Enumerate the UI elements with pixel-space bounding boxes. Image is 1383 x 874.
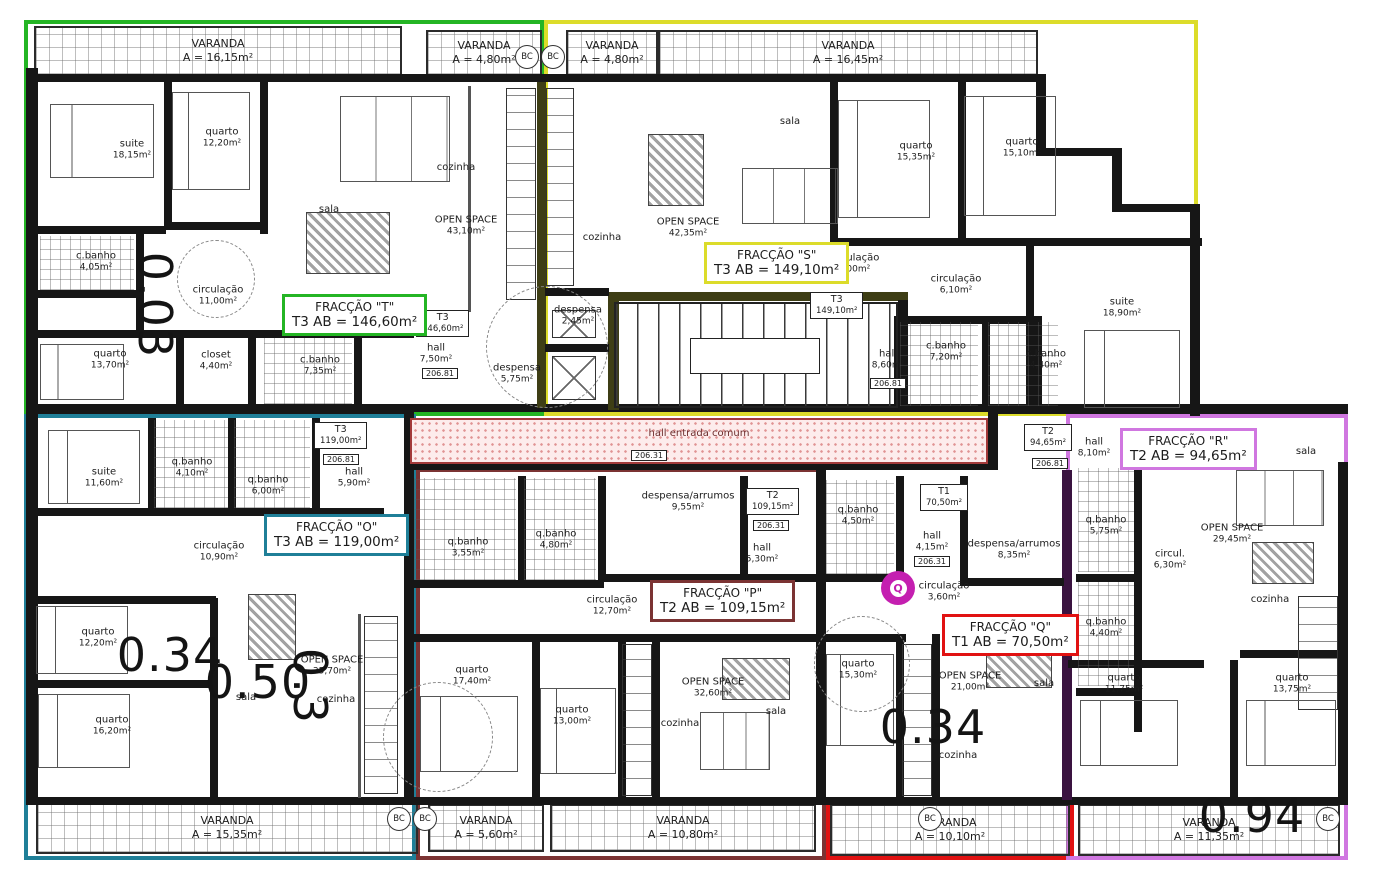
room-name: hall: [872, 349, 904, 361]
fraccao-box-Q: FRACÇÃO "Q" T1 AB = 70,50m²: [942, 614, 1079, 656]
room-area: 11,60m²: [85, 479, 123, 490]
wall: [412, 580, 604, 588]
varanda-area: A = 4,80m²: [580, 53, 643, 67]
room-label-s-quarto2: quarto15,10m²: [1003, 137, 1041, 160]
room-name: cozinha: [437, 162, 475, 174]
room-area: 5,90m²: [338, 479, 370, 490]
room-area: 6,30m²: [1154, 561, 1186, 572]
wall: [168, 222, 268, 230]
room-area: 6,00m²: [248, 487, 289, 498]
room-name: c.banho: [300, 355, 340, 367]
room-label-q-circ: circulação3,60m²: [919, 581, 970, 604]
room-name: suite: [1103, 297, 1141, 309]
room-area: 18,15m²: [113, 151, 151, 162]
room-label-s-circ2: circulação6,10m²: [931, 274, 982, 297]
room-label-t-cbanho2: c.banho7,35m²: [300, 355, 340, 378]
room-label-t-quarto1: quarto12,20m²: [203, 127, 241, 150]
wall: [26, 74, 1040, 82]
varanda-area: A = 16,45m²: [813, 53, 883, 67]
varanda-bottom-mid-right: VARANDAA = 10,10m²: [830, 804, 1070, 856]
room-name: despensa: [493, 363, 541, 375]
room-name: quarto: [203, 127, 241, 139]
wall: [1230, 660, 1238, 798]
room-name: q.banho: [1086, 617, 1127, 629]
room-label-p-sala: sala: [766, 706, 786, 718]
fraccao-detail: T2 AB = 94,65m²: [1130, 448, 1247, 464]
room-name: quarto: [93, 715, 131, 727]
room-label-o-suite: suite11,60m²: [85, 467, 123, 490]
room-name: q.banho: [248, 475, 289, 487]
room-label-r-circ: circul.6,30m²: [1154, 549, 1186, 572]
sofa: [742, 168, 838, 224]
room-area: 5,75m²: [1086, 527, 1127, 538]
room-name: suite: [85, 467, 123, 479]
fraccao-detail: T3 AB = 149,10m²: [714, 262, 839, 278]
room-name: q.banho: [1086, 515, 1127, 527]
wall: [164, 82, 172, 230]
varanda-label: VARANDA: [648, 814, 718, 828]
room-label-p-qbanho1: q.banho3,55m²: [448, 537, 489, 560]
room-name: sala: [780, 116, 800, 128]
room-name: despensa: [554, 305, 602, 317]
room-area: 13,70m²: [91, 361, 129, 372]
wall: [26, 797, 1346, 805]
room-area: 15,10m²: [1003, 149, 1041, 160]
room-name: q.banho: [536, 529, 577, 541]
room-label-s-quarto1: quarto15,35m²: [897, 141, 935, 164]
level-tag-S: 206.81: [870, 378, 906, 389]
wall: [532, 642, 540, 798]
room-label-p-circ: circulação12,70m²: [587, 595, 638, 618]
dining-table: [1252, 542, 1314, 584]
room-name: c.banho: [76, 251, 116, 263]
fraccao-title: FRACÇÃO "S": [714, 248, 839, 262]
wall: [1338, 462, 1348, 805]
room-label-r-hall: hall8,10m²: [1078, 437, 1110, 460]
room-label-p-despensa: despensa/arrumos9,55m²: [642, 491, 735, 514]
room-area: 18,90m²: [1103, 309, 1141, 320]
varanda-area: A = 5,60m²: [454, 828, 517, 842]
room-name: sala: [319, 204, 339, 216]
fraccao-detail: T1 AB = 70,50m²: [952, 634, 1069, 650]
wall: [1190, 204, 1200, 416]
room-area: 4,50m²: [838, 517, 879, 528]
varanda-label: VARANDA: [580, 39, 643, 53]
fraccao-title: FRACÇÃO "P": [660, 586, 785, 600]
varanda-label: VARANDA: [192, 814, 262, 828]
unit-type: T3: [816, 294, 857, 306]
room-label-t-cbanho1: c.banho4,05m²: [76, 251, 116, 274]
room-area: 13,75m²: [1273, 685, 1311, 696]
room-label-o-qbanho2: q.banho6,00m²: [248, 475, 289, 498]
room-name: hall: [1078, 437, 1110, 449]
bc-badge: BC: [515, 45, 539, 69]
room-label-r-quarto2: quarto13,75m²: [1273, 673, 1311, 696]
room-area: 3,60m²: [919, 593, 970, 604]
level-tag-O: 206.81: [323, 454, 359, 465]
unit-type: T3: [320, 424, 361, 436]
level-tag-hall: 206.31: [631, 450, 667, 461]
room-name: q.banho: [172, 457, 213, 469]
room-area: 21,00m²: [939, 683, 1002, 694]
room-label-t-cozinha: cozinha: [437, 162, 475, 174]
wall: [652, 642, 660, 798]
room-name: hall: [746, 543, 778, 555]
common-entrance-hall: hall entrada comum: [410, 418, 988, 464]
room-area: 13,00m²: [553, 717, 591, 728]
room-area: 8,10m²: [1078, 449, 1110, 460]
bathroom-tiles: [900, 322, 978, 406]
wall: [354, 336, 362, 408]
varanda-area: A = 15,35m²: [192, 828, 262, 842]
room-area: 11,00m²: [193, 297, 244, 308]
varanda-bottom-mid-left: VARANDAA = 5,60m²: [428, 804, 544, 852]
survey-number: 0.34: [880, 700, 986, 754]
room-area: 5,30m²: [746, 555, 778, 566]
unit-type: T1: [926, 486, 962, 498]
fraccao-title: FRACÇÃO "T": [292, 300, 417, 314]
room-area: 7,35m²: [300, 367, 340, 378]
fraccao-detail: T2 AB = 109,15m²: [660, 600, 785, 616]
unit-tag-Q: T1 70,50m²: [920, 484, 968, 511]
level-tag-Q: 206.31: [914, 556, 950, 567]
room-label-o-quarto2: quarto16,20m²: [93, 715, 131, 738]
room-area: 7,20m²: [926, 353, 966, 364]
room-name: cozinha: [583, 232, 621, 244]
room-name: suite: [113, 139, 151, 151]
fraccao-title: FRACÇÃO "R": [1130, 434, 1247, 448]
room-name: quarto: [1003, 137, 1041, 149]
varanda-area: A = 16,15m²: [183, 51, 253, 65]
fraccao-title: FRACÇÃO "Q": [952, 620, 1069, 634]
varanda-top-left: VARANDAA = 16,15m²: [34, 26, 402, 76]
room-label-q-despensa: despensa/arrumos8,35m²: [968, 539, 1061, 562]
unit-type: T3: [422, 312, 463, 324]
unit-tag-S: T3 149,10m²: [810, 292, 863, 319]
room-name: circul.: [1154, 549, 1186, 561]
room-label-o-quarto1: quarto12,20m²: [79, 627, 117, 650]
varanda-top-right: VARANDAA = 16,45m²: [658, 30, 1038, 76]
bed: [1246, 700, 1336, 766]
room-area: 4,80m²: [536, 541, 577, 552]
room-name: q.banho: [448, 537, 489, 549]
room-name: quarto: [1273, 673, 1311, 685]
stair-landing: [690, 338, 820, 374]
room-label-t-quarto2: quarto13,70m²: [91, 349, 129, 372]
room-area: 4,40m²: [1026, 361, 1066, 372]
wall: [32, 226, 166, 234]
hatch-pattern: [412, 420, 986, 462]
room-area: 3,55m²: [448, 549, 489, 560]
room-name: cozinha: [661, 718, 699, 730]
room-label-o-hall: hall5,90m²: [338, 467, 370, 490]
room-name: circulação: [931, 274, 982, 286]
room-name: q.banho: [838, 505, 879, 517]
turning-circle: [383, 682, 493, 792]
bc-badge: BC: [1316, 807, 1340, 831]
varanda-bottom-mid: VARANDAA = 10,80m²: [550, 804, 816, 852]
room-name: hall: [916, 531, 948, 543]
room-label-t-suite: suite18,15m²: [113, 139, 151, 162]
room-label-q-sala: sala: [1034, 678, 1054, 690]
room-label-p-open: OPEN SPACE32,60m²: [682, 677, 745, 700]
room-name: quarto: [553, 705, 591, 717]
wall: [260, 82, 268, 234]
room-label-s-cozinha: cozinha: [583, 232, 621, 244]
bc-badge: BC: [413, 807, 437, 831]
bathroom-tiles: [414, 478, 516, 580]
room-label-p-quarto2: quarto13,00m²: [553, 705, 591, 728]
unit-tag-O: T3 119,00m²: [314, 422, 367, 449]
room-name: c.banho: [926, 341, 966, 353]
room-area: 16,20m²: [93, 727, 131, 738]
fraccao-box-O: FRACÇÃO "O" T3 AB = 119,00m²: [264, 514, 409, 556]
unit-tag-P: T2 109,15m²: [746, 488, 799, 515]
room-name: hall: [338, 467, 370, 479]
room-name: quarto: [79, 627, 117, 639]
room-name: OPEN SPACE: [939, 671, 1002, 683]
unit-area: 146,60m²: [422, 324, 463, 335]
wall: [32, 290, 140, 298]
survey-number: 0.03: [128, 252, 182, 358]
room-area: 32,60m²: [682, 689, 745, 700]
varanda-area: A = 4,80m²: [452, 53, 515, 67]
room-area: 12,20m²: [203, 139, 241, 150]
kitchen-counter: [506, 88, 536, 300]
room-label-o-circ: circulação10,90m²: [194, 541, 245, 564]
common-hall-name: hall entrada: [649, 428, 709, 439]
room-name: quarto: [1105, 673, 1143, 685]
wall: [1076, 574, 1136, 582]
room-name: sala: [1296, 446, 1316, 458]
unit-area: 109,15m²: [752, 502, 793, 513]
room-label-s-cbanho1: c.banho7,20m²: [926, 341, 966, 364]
bc-badge: BC: [918, 807, 942, 831]
room-name: OPEN SPACE: [682, 677, 745, 689]
kitchen-counter: [546, 88, 574, 286]
common-hall-name-2: comum: [712, 428, 749, 439]
room-label-r-open: OPEN SPACE29,45m²: [1201, 523, 1264, 546]
wall: [960, 578, 1064, 586]
bed: [540, 688, 616, 774]
room-label-p-quarto1: quarto17,40m²: [453, 665, 491, 688]
room-name: hall: [420, 343, 452, 355]
room-label-p-hall: hall5,30m²: [746, 543, 778, 566]
unit-area: 94,65m²: [1030, 438, 1066, 449]
wall: [248, 336, 256, 406]
unit-area: 119,00m²: [320, 436, 361, 447]
room-area: 9,55m²: [642, 503, 735, 514]
room-label-r-sala: sala: [1296, 446, 1316, 458]
varanda-label: VARANDA: [183, 37, 253, 51]
sofa: [700, 712, 770, 770]
kitchen-counter: [622, 644, 652, 796]
room-area: 17,40m²: [453, 677, 491, 688]
room-name: cozinha: [1251, 594, 1289, 606]
dining-table: [306, 212, 390, 274]
wall: [830, 238, 1202, 246]
varanda-area: A = 10,10m²: [915, 830, 985, 844]
room-area: 6,10m²: [931, 286, 982, 297]
varanda-area: A = 10,80m²: [648, 828, 718, 842]
room-area: 15,35m²: [897, 153, 935, 164]
varanda-label: VARANDA: [813, 39, 883, 53]
fraccao-detail: T3 AB = 146,60m²: [292, 314, 417, 330]
room-label-s-sala: sala: [780, 116, 800, 128]
room-name: despensa/arrumos: [642, 491, 735, 503]
common-hall-label: hall entrada comum: [649, 428, 750, 440]
bed: [1080, 700, 1178, 766]
room-label-t-hall: hall7,50m²: [420, 343, 452, 366]
q-letter: Q: [890, 580, 907, 597]
varanda-label: VARANDA: [452, 39, 515, 53]
fraccao-title: FRACÇÃO "O": [274, 520, 399, 534]
varanda-label: VARANDA: [454, 814, 517, 828]
unit-type: T2: [752, 490, 793, 502]
varanda-top-mid-right: VARANDAA = 4,80m²: [566, 30, 658, 76]
room-area: 11,75m²: [1105, 685, 1143, 696]
room-name: closet: [200, 350, 232, 362]
survey-number: 0.3: [283, 648, 337, 724]
wall: [32, 596, 216, 604]
room-label-s-open: OPEN SPACE42,35m²: [657, 217, 720, 240]
room-name: quarto: [91, 349, 129, 361]
wall: [1112, 148, 1122, 212]
room-label-r-qbanho1: q.banho5,75m²: [1086, 515, 1127, 538]
room-label-t-closet: closet4,40m²: [200, 350, 232, 373]
fraccao-box-T: FRACÇÃO "T" T3 AB = 146,60m²: [282, 294, 427, 336]
floor-plan: VARANDAA = 16,15m² VARANDAA = 4,80m² VAR…: [0, 0, 1383, 874]
sofa: [340, 96, 450, 182]
room-name: quarto: [897, 141, 935, 153]
fraccao-box-S: FRACÇÃO "S" T3 AB = 149,10m²: [704, 242, 849, 284]
room-name: OPEN SPACE: [1201, 523, 1264, 535]
room-area: 12,70m²: [587, 607, 638, 618]
room-name: OPEN SPACE: [435, 215, 498, 227]
room-name: sala: [766, 706, 786, 718]
room-area: 4,05m²: [76, 263, 116, 274]
room-label-s-hall: hall8,60m²: [872, 349, 904, 372]
room-area: 43,10m²: [435, 227, 498, 238]
room-area: 5,75m²: [493, 375, 541, 386]
bc-badge: BC: [387, 807, 411, 831]
room-name: c.banho: [1026, 349, 1066, 361]
room-label-t-despensa: despensa5,75m²: [493, 363, 541, 386]
room-label-s-suite: suite18,90m²: [1103, 297, 1141, 320]
bed: [1084, 330, 1180, 408]
unit-tag-R: T2 94,65m²: [1024, 424, 1072, 451]
room-label-t-circ: circulação11,00m²: [193, 285, 244, 308]
room-label-r-quarto1: quarto11,75m²: [1105, 673, 1143, 696]
room-label-s-cbanho2: c.banho4,40m²: [1026, 349, 1066, 372]
room-area: 4,10m²: [172, 469, 213, 480]
wall-partition: [468, 86, 471, 312]
room-label-q-hall: hall4,15m²: [916, 531, 948, 554]
room-label-q-open: OPEN SPACE21,00m²: [939, 671, 1002, 694]
room-area: 7,50m²: [420, 355, 452, 366]
room-label-t-open: OPEN SPACE43,10m²: [435, 215, 498, 238]
wall: [26, 68, 38, 805]
room-area: 4,40m²: [1086, 629, 1127, 640]
wall: [598, 476, 606, 576]
room-area: 4,40m²: [200, 362, 232, 373]
sofa: [1236, 470, 1324, 526]
wall-partition: [358, 614, 361, 798]
room-label-t-sala: sala: [319, 204, 339, 216]
room-name: circulação: [193, 285, 244, 297]
room-label-s-despensa: despensa2,45m²: [554, 305, 602, 328]
fraccao-box-R: FRACÇÃO "R" T2 AB = 94,65m²: [1120, 428, 1257, 470]
room-name: circulação: [587, 595, 638, 607]
room-area: 4,15m²: [916, 543, 948, 554]
room-area: 42,35m²: [657, 229, 720, 240]
room-label-o-qbanho1: q.banho4,10m²: [172, 457, 213, 480]
level-tag-P: 206.31: [753, 520, 789, 531]
level-tag-R: 206.81: [1032, 458, 1068, 469]
circulation-marker-icon: Q: [881, 571, 915, 605]
varanda-bottom-left: VARANDAA = 15,35m²: [36, 802, 418, 854]
room-area: 2,45m²: [554, 317, 602, 328]
room-label-r-cozinha: cozinha: [1251, 594, 1289, 606]
room-name: sala: [1034, 678, 1054, 690]
room-label-p-cozinha: cozinha: [661, 718, 699, 730]
room-name: despensa/arrumos: [968, 539, 1061, 551]
room-name: circulação: [194, 541, 245, 553]
wall: [896, 476, 904, 576]
room-name: quarto: [453, 665, 491, 677]
room-label-q-qbanho: q.banho4,50m²: [838, 505, 879, 528]
room-area: 10,90m²: [194, 553, 245, 564]
dining-table: [648, 134, 704, 206]
room-area: 12,20m²: [79, 639, 117, 650]
room-area: 29,45m²: [1201, 535, 1264, 546]
fraccao-box-P: FRACÇÃO "P" T2 AB = 109,15m²: [650, 580, 795, 622]
room-label-r-qbanho2: q.banho4,40m²: [1086, 617, 1127, 640]
room-area: 8,35m²: [968, 551, 1061, 562]
room-area: 8,60m²: [872, 361, 904, 372]
unit-type: T2: [1030, 426, 1066, 438]
fraccao-detail: T3 AB = 119,00m²: [274, 534, 399, 550]
room-name: OPEN SPACE: [657, 217, 720, 229]
room-label-q-quarto: quarto15,30m²: [839, 659, 877, 682]
bc-badge: BC: [541, 45, 565, 69]
room-label-p-qbanho2: q.banho4,80m²: [536, 529, 577, 552]
room-name: circulação: [919, 581, 970, 593]
room-name: quarto: [839, 659, 877, 671]
unit-area: 149,10m²: [816, 306, 857, 317]
unit-area: 70,50m²: [926, 498, 962, 509]
survey-number: 0.94: [1199, 789, 1305, 843]
level-tag-T: 206.81: [422, 368, 458, 379]
room-area: 15,30m²: [839, 671, 877, 682]
wall: [1112, 204, 1200, 212]
wall: [412, 634, 824, 642]
